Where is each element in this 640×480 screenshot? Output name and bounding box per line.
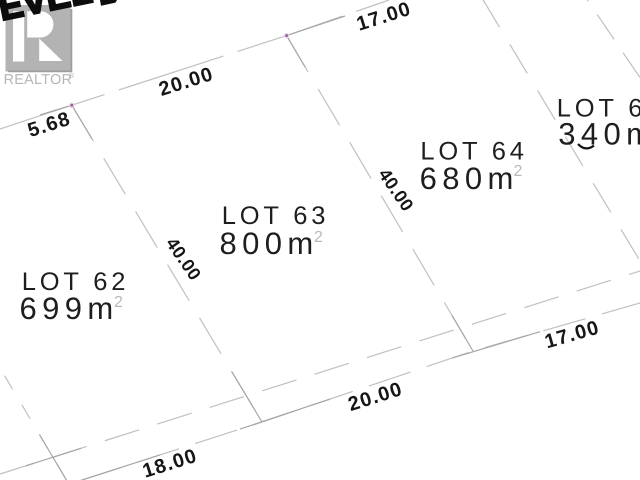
svg-text:680m: 680m	[420, 161, 519, 196]
svg-text:2: 2	[114, 294, 123, 311]
svg-text:340m: 340m	[558, 117, 640, 152]
svg-text:2: 2	[514, 163, 523, 180]
svg-text:800m: 800m	[220, 226, 319, 261]
svg-text:2: 2	[314, 229, 323, 246]
svg-text:699m: 699m	[20, 291, 119, 326]
svg-text:®: ®	[69, 71, 75, 80]
svg-text:REALTOR: REALTOR	[4, 72, 73, 88]
